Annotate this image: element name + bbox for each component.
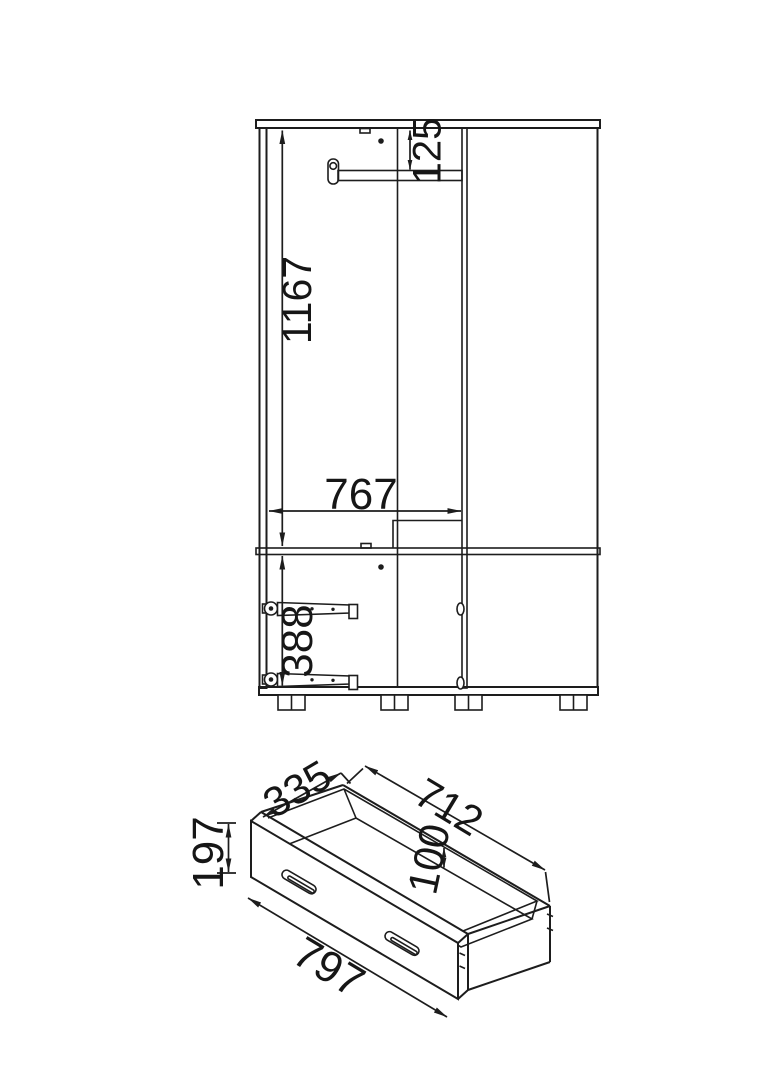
front-panel-right-top-edge (458, 934, 468, 943)
slide-hole (331, 608, 334, 611)
dim-label-front-height: 197 (184, 816, 233, 889)
slide-end-bracket (349, 676, 358, 690)
panel-dowel-mark (460, 966, 466, 969)
dim-ext-712-b (546, 872, 550, 902)
cam-lock-partition-upper (457, 603, 464, 615)
dim-label-height: 1167 (274, 256, 320, 344)
drawer-dimensions: 335 712 197 100 797 (184, 751, 550, 1017)
wardrobe-front-view: 125 1167 767 388 (256, 118, 600, 710)
front-panel-left-top-edge (251, 812, 261, 821)
right-wall-bottom-edge (468, 962, 550, 990)
furniture-dimension-drawing: 125 1167 767 388 (0, 0, 764, 1080)
drawer-isometric-view: 335 712 197 100 797 (184, 751, 553, 1017)
slide-hole (331, 679, 334, 682)
feet (278, 695, 587, 710)
dim-label-drawer-zone-height: 388 (273, 604, 322, 677)
front-panel-right-bottom-edge (458, 990, 468, 999)
bottom-panel (259, 687, 598, 695)
cam-lock-partition-lower (457, 677, 464, 689)
dowel-hole-shelf (378, 564, 384, 570)
wardrobe-dimensions: 125 1167 767 388 (269, 118, 461, 686)
slide-end-bracket (349, 605, 358, 619)
dim-label-rail-offset: 125 (406, 118, 450, 185)
technical-drawing-page: 125 1167 767 388 (0, 0, 764, 1080)
middle-shelf (256, 548, 600, 555)
shelf-step-edge (393, 521, 462, 549)
dim-label-inner-width: 767 (324, 470, 397, 519)
cam-connector-shelf (361, 544, 371, 549)
cam-connector-top (360, 129, 370, 134)
panel-dowel-mark (460, 953, 466, 956)
dowel-hole-top (378, 138, 384, 144)
right-wall-top-edge (468, 906, 550, 934)
dim-label-inner-height: 100 (399, 820, 460, 898)
dim-ext-712-a (347, 769, 363, 784)
